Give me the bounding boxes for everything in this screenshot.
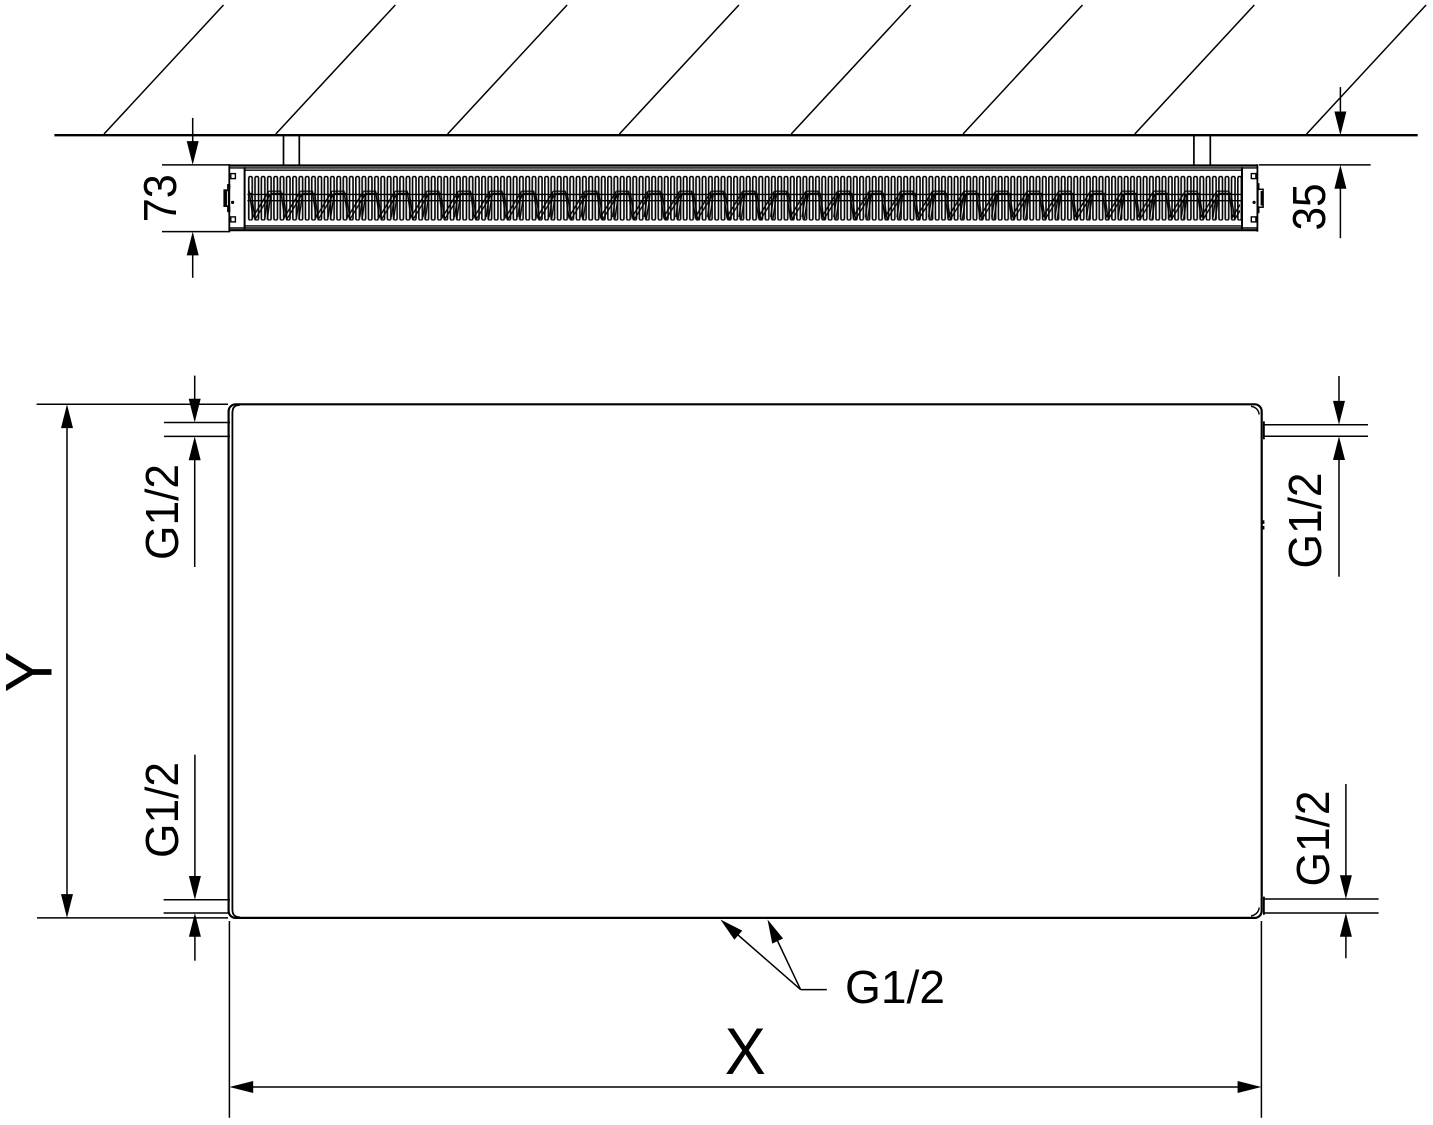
svg-text:73: 73 (134, 174, 186, 222)
svg-text:G1/2: G1/2 (845, 961, 945, 1013)
svg-text:G1/2: G1/2 (136, 464, 188, 560)
svg-text:G1/2: G1/2 (1287, 791, 1339, 887)
svg-text:35: 35 (1283, 184, 1335, 231)
svg-text:X: X (725, 1014, 766, 1088)
svg-text:Y: Y (0, 652, 66, 693)
svg-text:G1/2: G1/2 (1279, 473, 1331, 569)
svg-text:G1/2: G1/2 (136, 762, 188, 858)
